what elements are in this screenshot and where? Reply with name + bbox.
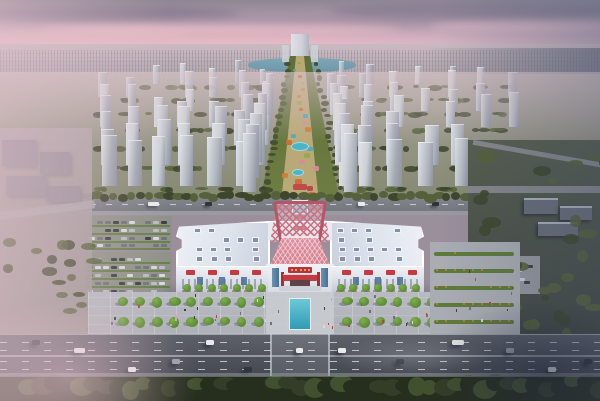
pedestrian (469, 270, 470, 273)
pedestrian (175, 315, 176, 318)
tree-canopy (267, 160, 274, 163)
car (432, 202, 439, 206)
tree-canopy (63, 308, 77, 314)
pedestrian (511, 292, 512, 295)
parked-car (127, 282, 133, 285)
skylight (225, 256, 232, 262)
park-feature (282, 173, 288, 178)
hedge-bloom (508, 320, 510, 322)
hedge-bloom (481, 269, 483, 271)
planter-tree (195, 284, 203, 292)
parked-car (153, 229, 159, 232)
entrance-column (317, 272, 320, 287)
hedge-bloom (463, 303, 465, 305)
tree-belt (334, 193, 343, 201)
parked-car (145, 221, 151, 224)
shed-building (524, 198, 558, 214)
plaza-tree (410, 297, 421, 308)
tree-canopy (529, 319, 539, 327)
tree-canopy (570, 215, 581, 227)
park-feature (299, 160, 305, 165)
plaza-tree (220, 297, 231, 306)
pedestrian (507, 309, 508, 312)
park-feature (313, 166, 319, 171)
tree-canopy (375, 166, 381, 171)
banner-gold-mark (304, 269, 306, 271)
tree-canopy (31, 248, 41, 254)
hedge-row (88, 233, 170, 235)
skylight (353, 247, 360, 253)
tree-canopy (3, 238, 17, 247)
planter-tree (208, 284, 216, 292)
park-feature (298, 62, 300, 64)
cloud (330, 2, 600, 20)
skylight (223, 237, 230, 243)
hedge-bloom (463, 269, 465, 271)
parked-car (129, 237, 135, 240)
hedge-bloom (436, 320, 438, 322)
parked-car (161, 244, 167, 247)
pedestrian (331, 298, 332, 301)
parked-car (161, 229, 167, 232)
red-sign (230, 270, 239, 275)
skylight (194, 228, 201, 234)
park-pond (292, 169, 304, 176)
skylight (339, 256, 346, 262)
banner-gold-mark (295, 269, 297, 271)
parked-car (153, 237, 159, 240)
planter-tree (220, 284, 228, 292)
car (584, 359, 592, 364)
pedestrian (216, 315, 217, 318)
parked-car (103, 282, 109, 285)
hedge-row (86, 270, 170, 272)
park-feature (304, 153, 310, 158)
reflecting-pool (289, 298, 311, 330)
residential-tower (387, 139, 401, 186)
parked-car (153, 221, 159, 224)
pedestrian (324, 307, 325, 310)
planter-tree (183, 284, 191, 292)
hedge-bloom (463, 320, 465, 322)
gateway-top-beam (276, 201, 324, 204)
hedge-bloom (499, 286, 501, 288)
hedge-bloom (499, 320, 501, 322)
residential-tower (359, 142, 373, 186)
road-dash (378, 204, 384, 205)
residential-tower (455, 138, 468, 186)
skylight (337, 228, 344, 234)
skylight (396, 256, 403, 262)
tree-canopy (436, 187, 449, 191)
skylight (208, 228, 215, 234)
hedge-bloom (508, 286, 510, 288)
pedestrian (215, 319, 216, 322)
pedestrian (382, 320, 383, 323)
parked-car (153, 244, 159, 247)
parked-car (159, 266, 165, 269)
parked-car (145, 237, 151, 240)
entrance-steps (279, 286, 321, 291)
parked-car (151, 274, 157, 277)
hedge-row (86, 286, 170, 288)
red-sign (408, 270, 417, 275)
aerial-city-rendering (0, 0, 600, 401)
pedestrian (328, 323, 329, 326)
car (172, 359, 180, 364)
parked-car (111, 274, 117, 277)
tree-canopy (56, 292, 68, 298)
pedestrian (426, 313, 427, 316)
skylight (365, 228, 372, 234)
skylight (354, 256, 361, 262)
tree-canopy (563, 234, 579, 244)
entrance-banner (288, 267, 312, 273)
parked-car (97, 221, 103, 224)
parked-car (119, 282, 125, 285)
plaza-tree (203, 297, 213, 306)
car (128, 367, 136, 372)
pedestrian (197, 307, 198, 310)
tree-canopy (47, 255, 57, 264)
parked-car (127, 258, 133, 261)
planter-tree (412, 284, 420, 292)
car (244, 367, 252, 372)
banner-gold-mark (300, 269, 302, 271)
parked-car (151, 266, 157, 269)
pedestrian (138, 305, 139, 308)
parked-car (121, 221, 127, 224)
road-dash (266, 204, 272, 205)
plaza-tree (169, 297, 181, 306)
tree-canopy (585, 304, 600, 310)
banner-gold-mark (291, 269, 293, 271)
parked-car (159, 274, 165, 277)
planter-tree (349, 284, 357, 292)
road-dash (330, 204, 336, 205)
residential-tower (207, 137, 222, 186)
parked-car (111, 266, 117, 269)
parked-car (113, 229, 119, 232)
tree-canopy (365, 187, 375, 191)
residential-tower (102, 135, 117, 186)
road-dash (250, 204, 256, 205)
car (338, 348, 346, 353)
road-dash (218, 204, 224, 205)
tree-belt (352, 193, 362, 201)
hedge-bloom (445, 320, 447, 322)
skylight (338, 237, 345, 243)
red-sign (386, 270, 395, 275)
tree-canopy (589, 154, 600, 161)
pedestrian (194, 316, 195, 319)
pedestrian (332, 326, 333, 329)
red-sign (252, 270, 261, 275)
pedestrian (361, 303, 362, 306)
sidewalk (0, 373, 600, 377)
pedestrian (481, 319, 482, 322)
residential-tower (128, 140, 141, 186)
car (296, 348, 303, 353)
tree-canopy (314, 62, 319, 66)
skylight (351, 228, 358, 234)
skylight (196, 256, 203, 262)
tree-canopy (3, 264, 13, 273)
road-dash (346, 204, 352, 205)
road-dash (170, 204, 176, 205)
tree-belt (262, 193, 271, 200)
skylight (339, 247, 346, 253)
hedge-row (434, 252, 514, 256)
parked-car (135, 258, 141, 261)
tree-canopy (76, 302, 87, 308)
parked-car (129, 221, 135, 224)
tree-canopy (264, 179, 272, 185)
tree-canopy (385, 187, 398, 192)
parked-car (95, 274, 101, 277)
hedge-row (86, 278, 170, 280)
pedestrian (114, 317, 115, 320)
pedestrian (456, 309, 457, 312)
hedge-bloom (472, 269, 474, 271)
car (358, 202, 365, 206)
tree-canopy (265, 173, 270, 176)
hedge-bloom (490, 320, 492, 322)
pedestrian (469, 307, 470, 310)
hedge-bloom (436, 303, 438, 305)
landmark-wing (311, 45, 318, 62)
parked-car (121, 244, 127, 247)
hedge-bloom (472, 303, 474, 305)
planter-tree (337, 284, 345, 292)
parked-car (119, 258, 125, 261)
pedestrian (184, 309, 185, 312)
hedge-bloom (490, 286, 492, 288)
pedestrian (374, 295, 375, 298)
parked-car (121, 229, 127, 232)
tree-belt (190, 193, 198, 202)
roof-ridge (281, 236, 319, 239)
hedge-bloom (454, 252, 456, 254)
plaza-tree (186, 317, 198, 327)
pedestrian (262, 319, 263, 322)
tree-canopy (42, 267, 57, 275)
plaza-tree (237, 297, 246, 308)
car (32, 340, 40, 345)
banner-gold-mark (308, 269, 310, 271)
tree-canopy (86, 258, 102, 264)
road-dash (458, 204, 464, 205)
hedge-row (88, 248, 170, 250)
tree-canopy (578, 229, 597, 238)
parked-car (135, 282, 141, 285)
parked-car (129, 244, 135, 247)
pedestrian (278, 310, 279, 313)
parked-car (121, 237, 127, 240)
pedestrian (270, 322, 271, 325)
red-sign (364, 270, 373, 275)
parked-car (103, 266, 109, 269)
park-feature (307, 186, 313, 191)
skylight (253, 256, 260, 262)
glass-panel (321, 267, 328, 287)
tree-canopy (403, 146, 409, 152)
skylight (367, 247, 374, 253)
hazy-building-block (46, 186, 80, 202)
pedestrian (234, 312, 235, 315)
parked-car (97, 237, 103, 240)
pedestrian (323, 325, 324, 328)
hedge-bloom (436, 286, 438, 288)
park-pond (291, 142, 309, 151)
skylight (252, 247, 259, 253)
pedestrian (175, 318, 176, 321)
pedestrian (257, 299, 258, 302)
plaza-tree (342, 317, 352, 326)
hedge-row (434, 303, 514, 307)
park-feature (293, 69, 296, 71)
car (74, 348, 85, 353)
park-red-pavilion (293, 184, 307, 190)
parked-car (111, 258, 117, 261)
skylight (395, 247, 402, 253)
red-sign (208, 270, 217, 275)
plaza-tree (359, 317, 370, 328)
tree-canopy (533, 166, 551, 176)
parked-car (143, 266, 149, 269)
pedestrian (395, 308, 396, 311)
parked-car (143, 282, 149, 285)
parked-car (113, 221, 119, 224)
tree-canopy (64, 259, 76, 267)
car (548, 367, 556, 372)
residential-tower (152, 136, 165, 186)
pedestrian (170, 324, 171, 327)
skylight (210, 247, 217, 253)
parked-car (105, 221, 111, 224)
parked-car (127, 274, 133, 277)
car (148, 202, 159, 206)
road-dash (442, 204, 448, 205)
parked-car (135, 266, 141, 269)
tree-canopy (477, 151, 496, 162)
tree-canopy (553, 310, 564, 322)
pedestrian (348, 325, 349, 328)
car (506, 348, 514, 353)
hedge-bloom (436, 269, 438, 271)
landmark-wing (282, 45, 289, 62)
skylight (366, 237, 373, 243)
parked-car (95, 282, 101, 285)
parked-car (105, 244, 111, 247)
hazy-building-block (40, 152, 70, 174)
hedge-row (88, 225, 170, 227)
tree-belt (136, 192, 145, 199)
pedestrian (369, 310, 370, 313)
pedestrian (265, 319, 266, 322)
residential-tower (418, 142, 432, 186)
hazy-building-block (2, 140, 36, 166)
plaza-tree (152, 297, 162, 308)
road-dash (394, 204, 400, 205)
planter-tree (245, 284, 253, 292)
planter-tree (399, 284, 407, 292)
hedge-bloom (445, 286, 447, 288)
skylight (394, 228, 401, 234)
hedge-bloom (472, 320, 474, 322)
glass-panel (272, 267, 279, 287)
pedestrian (393, 316, 394, 319)
residential-tower (180, 135, 193, 186)
tree-canopy (270, 147, 277, 150)
tree-canopy (328, 147, 333, 152)
pedestrian (111, 322, 112, 325)
car (206, 340, 214, 345)
skylight (211, 256, 218, 262)
road-dash (186, 204, 192, 205)
pedestrian (263, 296, 264, 299)
tree-canopy (57, 240, 68, 250)
planter-tree (362, 284, 370, 292)
car (205, 202, 212, 206)
crosswalk (270, 334, 330, 378)
hedge-bloom (508, 303, 510, 305)
plaza-tree (376, 297, 387, 306)
skylight (196, 247, 203, 253)
parked-car (105, 229, 111, 232)
parked-car (143, 274, 149, 277)
planter-tree (374, 284, 382, 292)
plaza-tree (152, 317, 163, 327)
parked-car (119, 266, 125, 269)
parked-car (97, 244, 103, 247)
parked-car (105, 237, 111, 240)
hedge-bloom (499, 303, 501, 305)
hazy-building-block (6, 176, 46, 196)
parked-car (524, 281, 530, 284)
tree-canopy (52, 280, 66, 285)
pedestrian (475, 278, 476, 281)
pedestrian (263, 305, 264, 308)
pedestrian (195, 294, 196, 297)
parked-car (95, 266, 101, 269)
parked-car (129, 229, 135, 232)
car (396, 359, 404, 364)
planter-tree (258, 284, 266, 292)
road-dash (410, 204, 416, 205)
road-dash (106, 204, 112, 205)
tree-canopy (561, 273, 574, 283)
tree-canopy (265, 166, 269, 170)
pedestrian (489, 302, 490, 305)
hedge-bloom (454, 269, 456, 271)
road-dash (234, 204, 240, 205)
plaza-tree (135, 317, 145, 328)
pedestrian (412, 321, 413, 324)
tree-canopy (94, 187, 105, 191)
road-dash (122, 204, 128, 205)
tree-belt (289, 192, 298, 199)
red-sign (342, 270, 351, 275)
road-dash (138, 204, 144, 205)
skylight (224, 247, 231, 253)
hedge-bloom (481, 303, 483, 305)
tree-belt (379, 191, 388, 198)
hedge-row (88, 241, 170, 243)
parked-car (151, 282, 157, 285)
skylight (368, 256, 375, 262)
pedestrian (406, 323, 407, 326)
